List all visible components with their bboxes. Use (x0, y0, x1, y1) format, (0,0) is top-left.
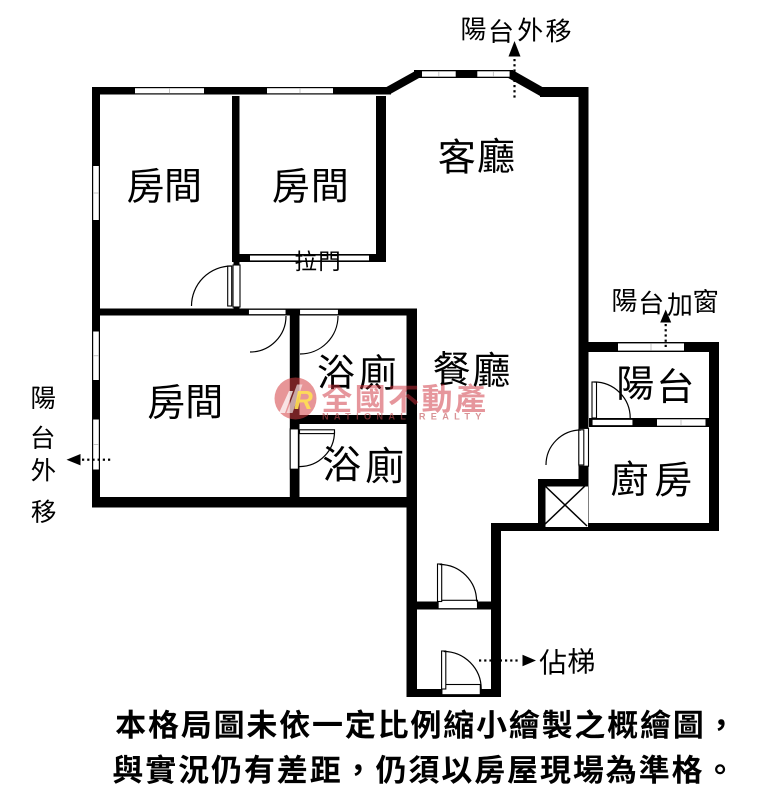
svg-text:NATIONAL REALTY: NATIONAL REALTY (322, 412, 487, 422)
svg-text:R: R (294, 385, 313, 415)
